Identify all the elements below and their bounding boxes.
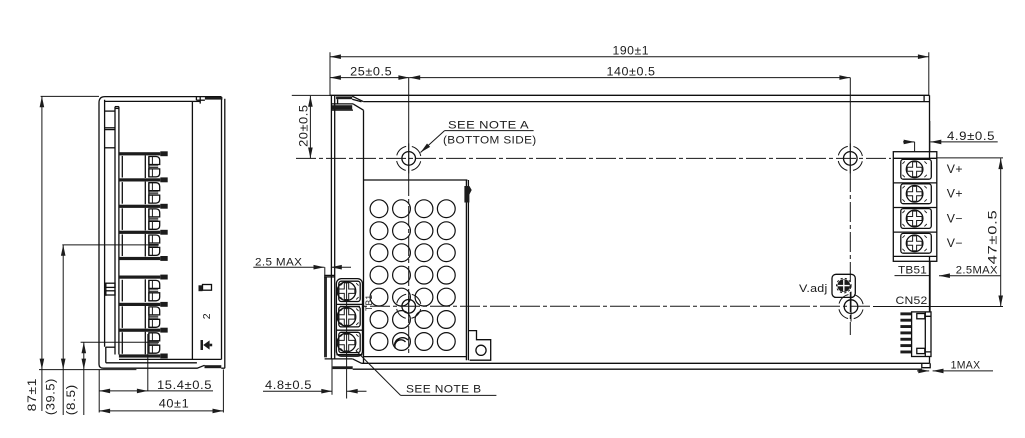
svg-text:25±0.5: 25±0.5: [350, 66, 392, 78]
svg-text:SEE NOTE B: SEE NOTE B: [406, 384, 482, 396]
svg-text:V−: V−: [947, 238, 963, 250]
svg-text:40±1: 40±1: [159, 398, 190, 410]
svg-text:15.4±0.5: 15.4±0.5: [157, 380, 212, 392]
svg-text:1MAX: 1MAX: [951, 359, 981, 371]
svg-text:4.8±0.5: 4.8±0.5: [265, 380, 312, 392]
svg-text:(BOTTOM SIDE): (BOTTOM SIDE): [443, 135, 537, 147]
svg-text:(39.5): (39.5): [46, 378, 58, 415]
svg-text:TB1: TB1: [364, 295, 375, 311]
svg-text:V+: V+: [947, 189, 963, 201]
svg-text:CN52: CN52: [896, 295, 928, 307]
svg-text:87±1: 87±1: [27, 378, 39, 411]
svg-text:SEE NOTE A: SEE NOTE A: [448, 119, 529, 131]
svg-text:(8.5): (8.5): [66, 384, 78, 415]
svg-text:4.9±0.5: 4.9±0.5: [947, 131, 995, 143]
svg-text:TB51: TB51: [898, 265, 927, 277]
svg-text:2.5MAX: 2.5MAX: [956, 265, 998, 277]
svg-text:V.adj: V.adj: [799, 283, 828, 295]
svg-text:V−: V−: [947, 213, 963, 225]
svg-text:47±0.5: 47±0.5: [988, 210, 1000, 265]
svg-text:2: 2: [201, 313, 213, 319]
svg-text:20±0.5: 20±0.5: [299, 105, 311, 147]
svg-text:V+: V+: [947, 164, 963, 176]
svg-text:190±1: 190±1: [613, 46, 650, 58]
svg-text:140±0.5: 140±0.5: [607, 66, 656, 78]
